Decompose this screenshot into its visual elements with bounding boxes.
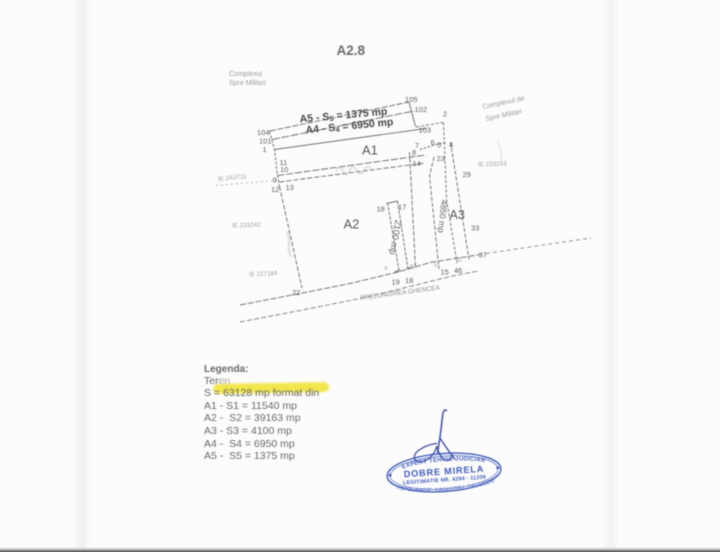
svg-text:15: 15	[441, 268, 449, 277]
svg-text:4850 mp: 4850 mp	[436, 199, 449, 233]
svg-text:2: 2	[443, 110, 447, 119]
svg-text:5: 5	[437, 141, 441, 150]
svg-text:IE 2A3711: IE 2A3711	[217, 173, 247, 183]
svg-text:33: 33	[471, 224, 479, 233]
svg-text:80: 80	[410, 265, 416, 271]
svg-text:Spre Militari: Spre Militari	[229, 80, 266, 87]
svg-text:29: 29	[463, 170, 471, 179]
svg-text:A3: A3	[450, 208, 465, 222]
svg-text:105: 105	[405, 95, 418, 104]
svg-text:51: 51	[434, 263, 440, 269]
svg-text:4: 4	[449, 141, 453, 150]
svg-text:6: 6	[431, 138, 435, 147]
svg-text:103: 103	[419, 126, 432, 135]
svg-text:46: 46	[454, 266, 462, 275]
svg-text:9: 9	[273, 176, 277, 185]
svg-text:14: 14	[413, 159, 421, 168]
svg-text:Complexul: Complexul	[229, 71, 263, 78]
svg-text:1: 1	[263, 145, 267, 154]
svg-text:IE 227184: IE 227184	[249, 270, 279, 279]
svg-text:19: 19	[392, 278, 400, 287]
svg-text:102: 102	[415, 105, 428, 114]
svg-text:A1: A1	[362, 143, 378, 158]
svg-text:IE 233243: IE 233243	[478, 160, 507, 168]
svg-text:8: 8	[412, 148, 416, 157]
svg-text:18: 18	[405, 276, 413, 285]
svg-text:A2: A2	[344, 217, 360, 232]
svg-text:PRELUNGIREA GHENCEA: PRELUNGIREA GHENCEA	[360, 284, 441, 301]
svg-text:37: 37	[479, 251, 487, 260]
svg-text:6: 6	[385, 266, 388, 272]
svg-text:IE 233242: IE 233242	[232, 221, 261, 229]
svg-text:2100 mp: 2100 mp	[387, 219, 403, 255]
svg-text:Spre Militari: Spre Militari	[485, 108, 523, 123]
svg-text:18: 18	[377, 205, 385, 214]
svg-text:22: 22	[292, 288, 300, 297]
svg-text:10: 10	[280, 165, 288, 174]
svg-text:17: 17	[398, 203, 406, 212]
svg-text:62: 62	[456, 258, 462, 264]
svg-text:23: 23	[437, 154, 445, 163]
svg-text:13: 13	[286, 183, 294, 192]
svg-text:12: 12	[271, 185, 279, 194]
